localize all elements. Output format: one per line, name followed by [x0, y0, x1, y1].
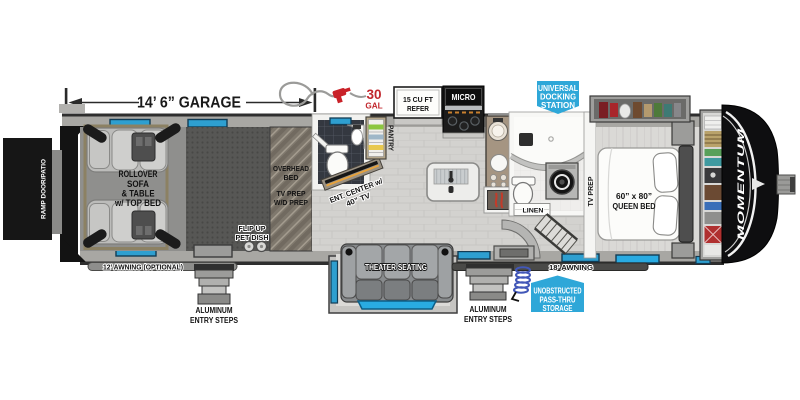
svg-text:ALUMINUM: ALUMINUM: [470, 304, 507, 314]
svg-text:PET DISH: PET DISH: [236, 233, 269, 242]
svg-text:18’ AWNING: 18’ AWNING: [549, 263, 593, 272]
svg-text:W/D PREP: W/D PREP: [274, 198, 308, 207]
svg-text:OVERHEAD: OVERHEAD: [273, 164, 309, 173]
svg-text:ENTRY STEPS: ENTRY STEPS: [464, 314, 512, 324]
svg-text:TV PREP: TV PREP: [588, 176, 595, 206]
svg-text:UNOBSTRUCTED: UNOBSTRUCTED: [534, 287, 582, 296]
svg-text:TV PREP: TV PREP: [277, 189, 306, 198]
svg-text:15 CU FT: 15 CU FT: [403, 95, 434, 104]
svg-text:MICRO: MICRO: [452, 93, 477, 102]
svg-text:60” x 80”: 60” x 80”: [616, 191, 652, 201]
svg-text:12’ AWNING (OPTIONAL): 12’ AWNING (OPTIONAL): [103, 263, 183, 272]
svg-text:QUEEN BED: QUEEN BED: [613, 201, 656, 211]
svg-text:ENTRY STEPS: ENTRY STEPS: [190, 315, 238, 325]
svg-text:STORAGE: STORAGE: [543, 304, 573, 313]
svg-text:BED: BED: [284, 173, 299, 182]
svg-text:STATION: STATION: [541, 101, 575, 110]
svg-text:30: 30: [366, 87, 381, 102]
svg-text:PANTRY: PANTRY: [387, 125, 394, 151]
svg-text:14’ 6” GARAGE: 14’ 6” GARAGE: [137, 95, 241, 112]
svg-text:SOFA: SOFA: [127, 179, 149, 189]
svg-text:FLIP UP: FLIP UP: [239, 224, 266, 233]
svg-text:REFER: REFER: [407, 104, 430, 113]
svg-text:MOMENTUM: MOMENTUM: [736, 127, 747, 240]
svg-text:& TABLE: & TABLE: [122, 189, 155, 199]
svg-text:RAMP DOOR/PATIO: RAMP DOOR/PATIO: [41, 159, 48, 219]
svg-text:ROLLOVER: ROLLOVER: [119, 169, 158, 179]
svg-text:ALUMINUM: ALUMINUM: [196, 305, 233, 315]
svg-text:LINEN: LINEN: [523, 208, 544, 215]
svg-text:w/ TOP BED: w/ TOP BED: [114, 198, 161, 208]
svg-text:THEATER SEATING: THEATER SEATING: [365, 262, 427, 272]
svg-text:GAL: GAL: [365, 102, 382, 111]
